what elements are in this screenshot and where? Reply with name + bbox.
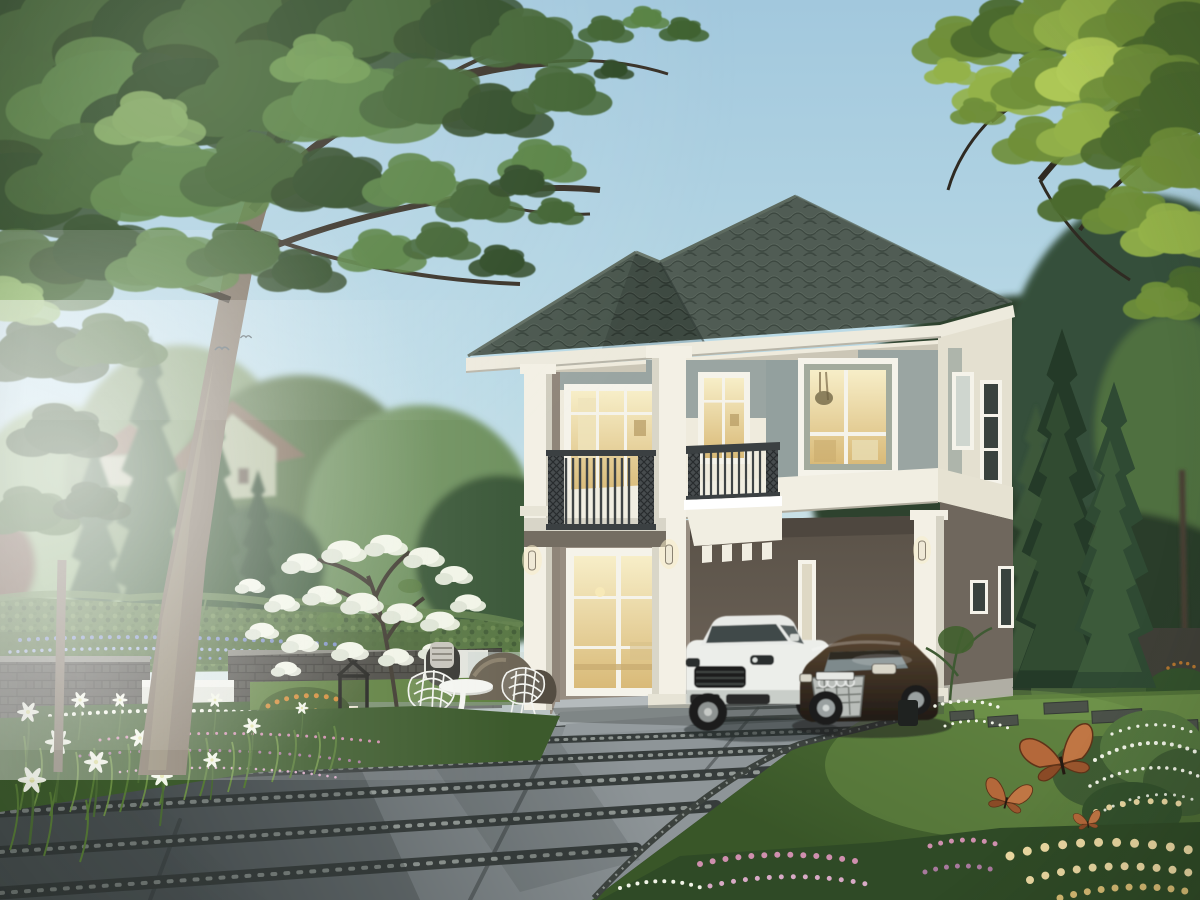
rendered-scene bbox=[0, 0, 1200, 900]
vignette bbox=[0, 0, 1200, 900]
scene-canvas bbox=[0, 0, 1200, 900]
